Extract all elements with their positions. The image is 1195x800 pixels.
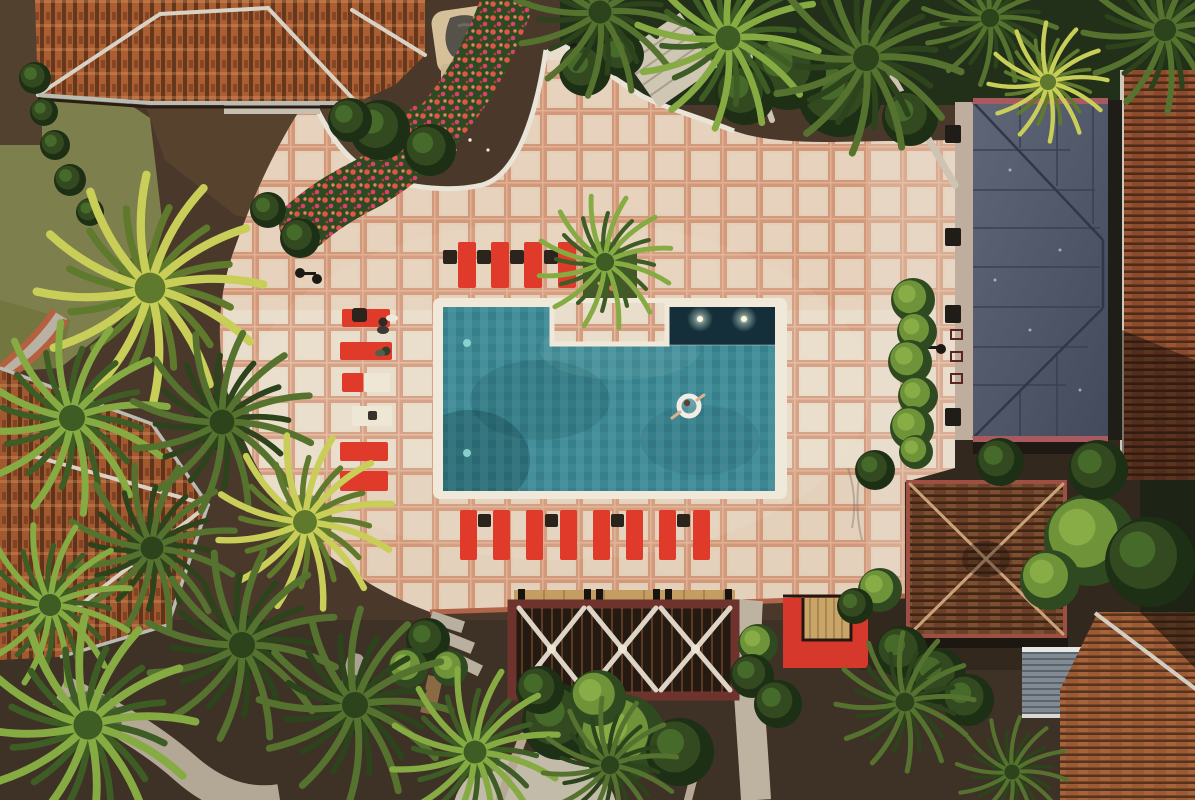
side-table	[611, 514, 624, 527]
brace-hub	[618, 645, 627, 654]
lounger	[364, 373, 390, 392]
side-table	[510, 250, 524, 264]
side-table	[477, 250, 491, 264]
lounger	[524, 242, 542, 288]
bush	[1068, 440, 1128, 500]
item-on-lounger	[368, 411, 377, 420]
pool-light-dot	[463, 449, 471, 457]
lounger	[693, 510, 710, 560]
bush	[899, 435, 933, 469]
bush	[328, 98, 372, 142]
lounger	[659, 510, 676, 560]
side-table	[478, 514, 491, 527]
scene-canvas	[0, 0, 1195, 800]
bag-on-lounger	[352, 308, 367, 322]
building-top-left-roof	[35, 0, 425, 107]
bush	[30, 98, 58, 126]
side-table	[677, 514, 690, 527]
building-right-roof	[1108, 70, 1195, 480]
bush	[1020, 550, 1080, 610]
bush	[40, 130, 70, 160]
lounger	[460, 510, 477, 560]
side-table	[545, 514, 558, 527]
bush	[1105, 517, 1195, 607]
bush	[250, 192, 286, 228]
side-table	[443, 250, 457, 264]
lounger	[493, 510, 510, 560]
lounger	[593, 510, 610, 560]
bush	[976, 438, 1024, 486]
lounger	[342, 373, 364, 392]
brace-hub	[547, 645, 556, 654]
lounger	[626, 510, 643, 560]
lounger	[526, 510, 543, 560]
brace-hub	[691, 645, 700, 654]
bush	[19, 62, 51, 94]
bush	[837, 588, 873, 624]
building-slate-roof	[945, 98, 1108, 454]
bush	[54, 164, 86, 196]
lounger	[458, 242, 476, 288]
bush	[888, 340, 932, 384]
lounger	[340, 442, 388, 461]
bush	[754, 680, 802, 728]
bush	[280, 218, 320, 258]
lounger	[560, 510, 577, 560]
spa-light-core	[741, 316, 747, 322]
slate-building-wall	[955, 102, 973, 440]
pool	[410, 298, 787, 510]
bush	[404, 124, 456, 176]
bush	[432, 650, 468, 686]
side-table	[544, 250, 558, 264]
lounger	[491, 242, 509, 288]
spa-light-core	[697, 316, 703, 322]
aerial-resort-photo	[0, 0, 1195, 800]
bush	[855, 450, 895, 490]
spa-ledge	[667, 307, 775, 345]
pool-light-dot	[463, 339, 471, 347]
